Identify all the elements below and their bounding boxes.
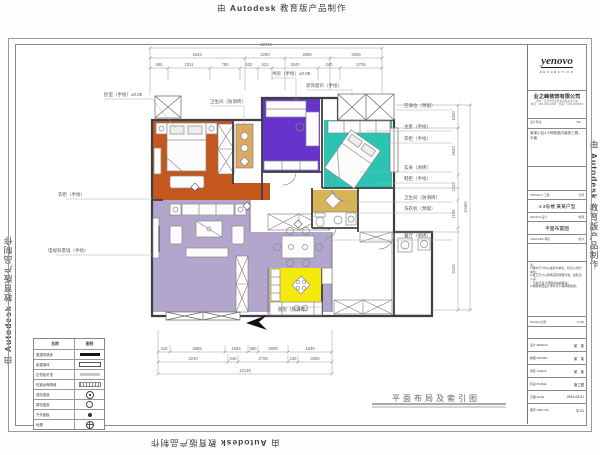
desk-study — [306, 112, 319, 146]
side-table-left — [170, 204, 181, 215]
sheet-title: 平面布局及索引图 — [392, 393, 480, 404]
label-ac: 空调位（预留） — [404, 104, 436, 109]
spacer — [528, 167, 586, 191]
legend-row: 原建筑墙体 — [34, 349, 104, 359]
low-voltage-symbol — [86, 401, 93, 408]
legend-row: 轻钢龙骨隔墙 — [34, 379, 104, 389]
checker-row: 审核 CHECK 某 某 — [528, 365, 586, 378]
nightstand-right — [206, 123, 217, 134]
dining-table — [282, 236, 314, 258]
drawing-number: 平-01 — [576, 408, 584, 413]
label-bedroom2: 卧室（手绘）±0.00 — [104, 93, 142, 98]
svg-text:2705: 2705 — [258, 356, 268, 361]
svg-text:2311: 2311 — [184, 62, 194, 67]
scale-row: SCALE 比例 1:100 — [528, 317, 586, 327]
dim-bottom-total: 10135 — [239, 368, 251, 373]
bed-bench — [170, 176, 204, 188]
legend-row: 地漏 — [34, 419, 104, 429]
label-dining: 餐厅（地砖） — [404, 234, 431, 239]
svg-text:1243: 1243 — [451, 182, 456, 192]
notes: 注： 1.图中尺寸均以毫米为单位，标高以米为单位； 2.施工尺寸以现场实际测量为… — [528, 262, 586, 317]
svg-text:4240: 4240 — [188, 356, 198, 361]
stud-wall-symbol — [79, 382, 101, 388]
power-outlet-symbol — [86, 391, 94, 399]
svg-text:1195: 1195 — [451, 209, 456, 219]
bookcase-study — [264, 161, 318, 170]
svg-text:1050: 1050 — [451, 111, 456, 121]
toilet — [316, 217, 324, 227]
svg-text:2805: 2805 — [351, 52, 361, 57]
label-shoe: 鞋柜（手绘） — [404, 177, 431, 182]
svg-text:620: 620 — [246, 62, 254, 67]
svg-text:523: 523 — [262, 62, 270, 67]
svg-text:240: 240 — [290, 356, 298, 361]
label-curtain: 装饰窗帘（手绘） — [306, 84, 342, 89]
dim-top-total: 12740 — [260, 42, 272, 47]
switch-symbol — [88, 413, 92, 417]
drawing-number-row: 图号 DWG NO. 平-01 — [528, 404, 586, 416]
label-master: 主卧（手绘） — [404, 125, 431, 130]
company-name: 业之峰装饰有限公司 — [528, 93, 586, 100]
svg-text:419: 419 — [161, 346, 169, 351]
dresser — [154, 148, 161, 174]
fridge — [322, 268, 332, 284]
legend-table: 名称 图例 原建筑墙体 新建墙体 石膏板吊顶 轻钢龙骨隔墙 强电插座 弱电插座 — [33, 338, 105, 430]
bench — [186, 248, 228, 257]
designer-row: 设计 DESIGN 某 某 — [528, 339, 586, 352]
date-row: 日期 DATE 2014.03.01 — [528, 391, 586, 404]
company-info: 业之峰装饰有限公司 地址：某某市某某区某某路某某大厦 电话：400-0000-0… — [528, 91, 586, 119]
label-tv-wall: 电视背景墙（手绘） — [48, 249, 89, 254]
drawing-date: 2014.03.01 — [567, 395, 584, 399]
project-description: 某某小区4-3号楼室内装饰工程，平面 — [528, 129, 586, 167]
toilet-tank — [315, 213, 325, 217]
door-study — [283, 172, 296, 185]
label-entry: 玄关（地砖） — [404, 166, 431, 171]
cad-sheet: 由 Autodesk 教育版产品制作 由 Autodesk 教育版产品制作 由 … — [0, 0, 600, 455]
project-row: PROJECT 工程 名称 — [528, 191, 586, 200]
floor-drain-symbol — [86, 421, 94, 429]
unit-name: 4-3号楼 某某户型 — [528, 200, 586, 213]
svg-text:2445: 2445 — [451, 264, 456, 274]
svg-text:3040: 3040 — [290, 62, 300, 67]
svg-text:1835: 1835 — [305, 346, 315, 351]
dim-right-total: 10460 — [463, 201, 468, 213]
company-logo: yenovo DECORATION — [528, 45, 586, 91]
logo-text: yenovo — [541, 56, 573, 68]
logo-subtext: DECORATION — [528, 70, 586, 74]
legend-row: 石膏板吊顶 — [34, 369, 104, 379]
gypsum-symbol — [80, 373, 100, 377]
title-block: yenovo DECORATION 业之峰装饰有限公司 地址：某某市某某区某某路… — [527, 45, 586, 424]
label-closet-left: 衣柜（手绘） — [58, 193, 85, 198]
new-wall-symbol — [79, 362, 101, 367]
label-bath: 卫生间（防滑砖） — [404, 196, 440, 201]
svg-text:3350: 3350 — [310, 356, 320, 361]
svg-text:780: 780 — [222, 62, 230, 67]
tv-cabinet — [153, 218, 159, 258]
armchair-left — [170, 226, 182, 244]
label-washer: 洗衣机（预留） — [404, 207, 436, 212]
scale-value: 1:100 — [577, 320, 584, 324]
label-study: 书房（手绘）±0.00 — [272, 72, 310, 77]
nightstand-left — [156, 123, 167, 134]
armchair-right — [232, 226, 244, 244]
sofa — [182, 204, 234, 215]
label-kitchen: 厨房（防滑砖） — [278, 308, 310, 313]
svg-text:240: 240 — [230, 356, 238, 361]
svg-text:4533: 4533 — [451, 146, 456, 156]
svg-text:2805: 2805 — [268, 346, 278, 351]
svg-text:3865: 3865 — [192, 346, 202, 351]
svg-text:2280: 2280 — [260, 52, 270, 57]
contact-row: 设计专线 TEL： — [528, 119, 586, 129]
label-wardrobe: 衣柜（手绘） — [404, 137, 431, 142]
legend-header: 名称 图例 — [34, 339, 104, 349]
svg-text:2705: 2705 — [356, 62, 366, 67]
svg-text:2895: 2895 — [302, 52, 312, 57]
legend-row: 弱电插座 — [34, 399, 104, 409]
svg-text:1565: 1565 — [231, 346, 241, 351]
company-phone: 电话：400-0000-0000 传真：0000-0000000 — [528, 103, 586, 106]
design-row: DESIGN 设计 制图 — [528, 213, 586, 222]
svg-text:240: 240 — [326, 62, 334, 67]
north-arrow — [246, 315, 267, 330]
legend-row: 新建墙体 — [34, 359, 104, 369]
drafter-row: 制图 DRAWN 某 某 — [528, 352, 586, 365]
svg-text:860: 860 — [156, 62, 164, 67]
checked-row: CHECKED 审核 校对 — [528, 235, 586, 244]
drawing-name: 平面布置图 — [528, 222, 586, 235]
spacer — [528, 244, 586, 262]
svg-text:4633: 4633 — [192, 52, 202, 57]
legend-row: 开关面板 — [34, 409, 104, 419]
svg-text:580: 580 — [250, 346, 258, 351]
washing-machine — [346, 213, 356, 225]
solid-wall-symbol — [80, 353, 100, 357]
spacer — [528, 327, 586, 339]
legend-row: 强电插座 — [34, 389, 104, 399]
label-bath-top: 卫生间（防滑砖） — [210, 100, 246, 105]
phase-row: 阶段 PHASE 施工图 — [528, 378, 586, 391]
